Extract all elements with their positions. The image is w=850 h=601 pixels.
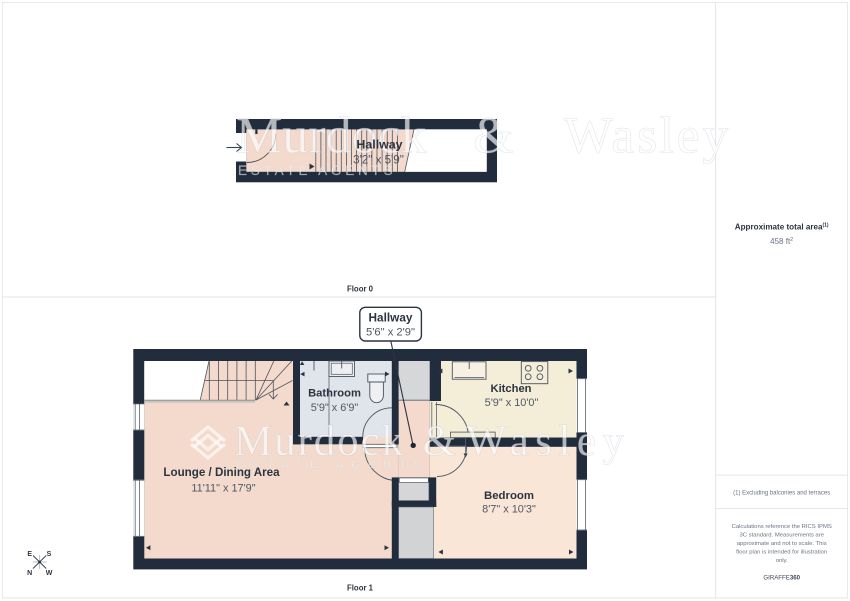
svg-text:GIRAFFE360: GIRAFFE360 <box>763 575 800 582</box>
svg-text:458 ft2: 458 ft2 <box>770 237 793 246</box>
svg-text:(1) Excluding balconies and te: (1) Excluding balconies and terraces <box>733 491 830 497</box>
svg-text:3'2" x 5'9": 3'2" x 5'9" <box>353 154 404 167</box>
svg-text:Wasley: Wasley <box>564 108 731 165</box>
svg-text:Lounge / Dining Area: Lounge / Dining Area <box>163 466 280 479</box>
svg-text:11'11" x 17'9": 11'11" x 17'9" <box>191 483 255 495</box>
svg-text:Hallway: Hallway <box>356 138 402 152</box>
svg-text:only.: only. <box>776 558 788 564</box>
svg-text:floor plan is intended for ill: floor plan is intended for illustration <box>736 550 827 556</box>
svg-text:5'6" x 2'9": 5'6" x 2'9" <box>366 327 415 339</box>
svg-text:Approximate total area(1): Approximate total area(1) <box>735 223 829 232</box>
svg-text:W: W <box>46 570 53 577</box>
svg-text:&: & <box>473 108 513 165</box>
svg-text:3C standard. Measurements are: 3C standard. Measurements are <box>739 533 824 539</box>
svg-text:5'9" x 6'9": 5'9" x 6'9" <box>311 402 359 414</box>
svg-text:Wasley: Wasley <box>466 418 631 465</box>
svg-text:Hallway: Hallway <box>369 311 413 325</box>
svg-text:Bedroom: Bedroom <box>484 490 534 502</box>
svg-text:Floor 1: Floor 1 <box>347 584 374 593</box>
svg-text:&: & <box>423 418 456 465</box>
svg-text:S: S <box>47 551 52 558</box>
svg-text:N: N <box>27 570 32 577</box>
svg-text:Murdock: Murdock <box>234 418 405 465</box>
svg-text:Bathroom: Bathroom <box>308 388 361 400</box>
svg-text:E: E <box>27 551 32 558</box>
svg-text:Floor 0: Floor 0 <box>347 285 374 294</box>
svg-text:approximate and not to scale.: approximate and not to scale. This <box>737 541 827 547</box>
svg-text:Kitchen: Kitchen <box>490 383 531 395</box>
svg-text:Calculations reference the RIC: Calculations reference the RICS IPMS <box>732 524 832 530</box>
svg-text:5'9" x 10'0": 5'9" x 10'0" <box>485 397 539 409</box>
svg-text:8'7" x 10'3": 8'7" x 10'3" <box>482 504 536 516</box>
